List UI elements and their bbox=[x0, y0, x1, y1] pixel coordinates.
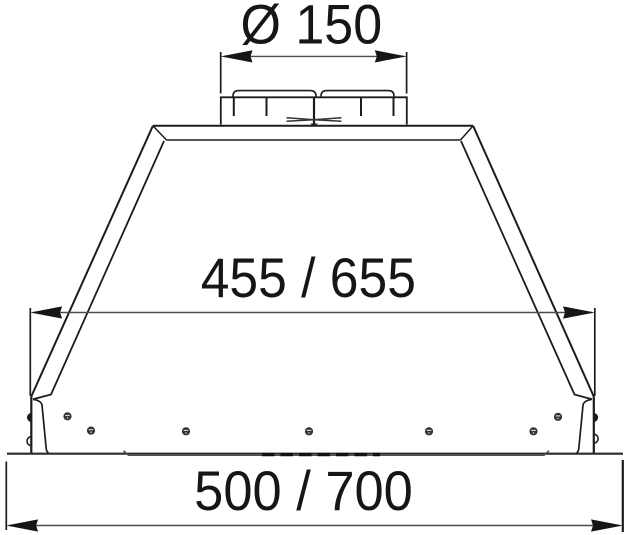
svg-text:Ø 150: Ø 150 bbox=[240, 0, 382, 56]
svg-text:500 / 700: 500 / 700 bbox=[194, 461, 413, 523]
svg-text:455 / 655: 455 / 655 bbox=[201, 247, 416, 309]
